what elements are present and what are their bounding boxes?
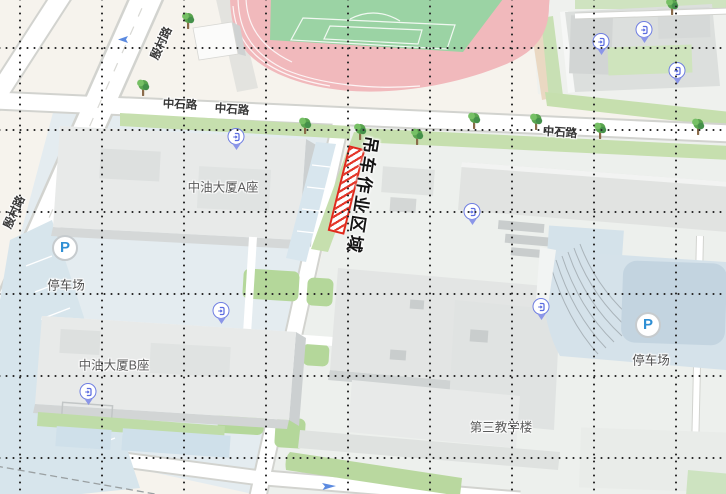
parking-left-label: 停车场: [47, 275, 85, 294]
door-icon: [213, 302, 230, 319]
stadium: [193, 0, 550, 92]
entrance-marker[interactable]: [80, 383, 97, 406]
parking-marker-left[interactable]: P: [52, 235, 78, 261]
entrance-marker[interactable]: [669, 62, 686, 85]
door-icon: [80, 383, 97, 400]
map-canvas[interactable]: 吊车作业区域 中石路 中石路 中石路 殷村路 殷村路 中油大厦A座 中油大厦B座…: [0, 0, 726, 494]
tree-icon: [137, 80, 149, 96]
door-icon: [669, 62, 686, 79]
building-b-label: 中油大厦B座: [79, 355, 150, 374]
tree-icon: [182, 13, 194, 29]
parking-lot-right: [621, 260, 726, 346]
parking-right-label: 停车场: [632, 350, 670, 369]
door-icon: [464, 203, 481, 220]
parking-marker-right[interactable]: P: [635, 312, 661, 338]
entrance-marker[interactable]: [213, 302, 230, 325]
door-icon: [593, 33, 610, 50]
entrance-marker[interactable]: [533, 298, 550, 321]
door-icon: [228, 128, 245, 145]
road-label-zhongshi-2: 中石路: [214, 100, 250, 118]
entrance-marker[interactable]: [593, 33, 610, 56]
road-label-zhongshi-1: 中石路: [162, 95, 197, 113]
entrance-marker[interactable]: [228, 128, 245, 151]
entrance-marker[interactable]: [636, 21, 653, 44]
building-a-label: 中油大厦A座: [188, 177, 259, 196]
door-icon: [636, 21, 653, 38]
road-label-zhongshi-3: 中石路: [542, 123, 578, 141]
teaching-building-label: 第三教学楼: [470, 417, 533, 436]
small-building: [193, 22, 238, 60]
door-icon: [533, 298, 550, 315]
entrance-marker[interactable]: [464, 203, 481, 226]
topright-campus-area: [526, 0, 726, 127]
